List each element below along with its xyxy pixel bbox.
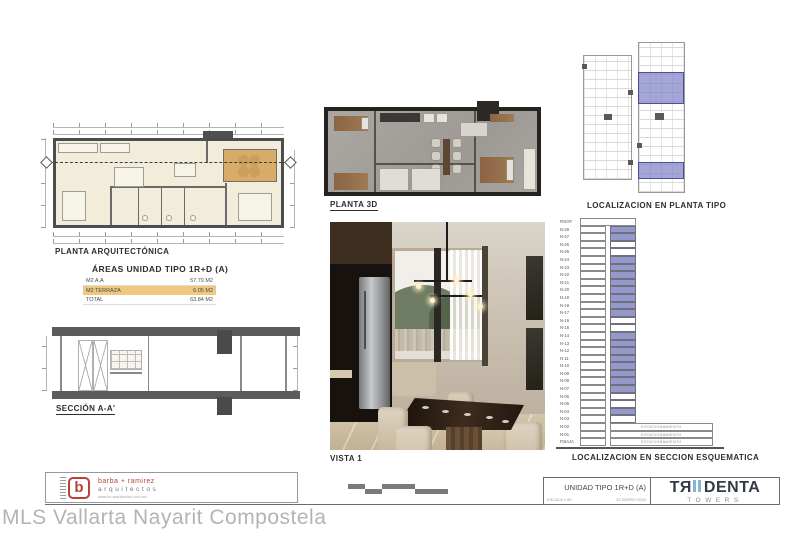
level-row: N-12	[558, 347, 758, 355]
place-setting	[502, 420, 509, 423]
chair-3d	[453, 152, 461, 160]
sofa	[392, 362, 436, 396]
wall-art	[526, 256, 543, 320]
level-row: P.BAJAESTACIONAMIENTO	[558, 438, 758, 446]
building-left	[583, 55, 632, 180]
firm-name: barba + ramirez	[98, 478, 155, 485]
level-row: N-18	[558, 302, 758, 310]
chair-3d	[432, 139, 440, 147]
level-row: N-11	[558, 355, 758, 363]
loc-seccion-title: LOCALIZACION EN SECCION ESQUEMATICA	[572, 453, 759, 462]
plan-title: PLANTA ARQUITECTÓNICA	[55, 247, 169, 256]
unit-highlight-bottom	[638, 162, 684, 179]
dining-table	[114, 167, 144, 187]
appliance-3d	[437, 114, 447, 122]
dimension-line	[53, 239, 284, 244]
brand-cell: TЯDENTA TOWERS	[650, 477, 780, 505]
dimension-line	[41, 138, 46, 228]
interior-wall	[225, 183, 227, 225]
interior-wall	[184, 187, 185, 225]
wc-fixture	[142, 215, 148, 221]
vista-render	[330, 222, 545, 450]
section-column-stub	[217, 397, 232, 415]
wall-art	[526, 328, 543, 390]
pendant-arm	[414, 280, 472, 282]
core-chip	[604, 114, 612, 120]
light-bulb	[430, 298, 435, 303]
dimension-line	[293, 336, 298, 391]
dimension-line	[53, 123, 284, 128]
level-row: N-22	[558, 271, 758, 279]
level-row: N-15	[558, 324, 758, 332]
section-wall	[148, 336, 149, 391]
wc-fixture	[190, 215, 196, 221]
planta-3d-title: PLANTA 3D	[330, 200, 378, 211]
level-row: N-17	[558, 309, 758, 317]
level-row: N-16	[558, 317, 758, 325]
kitchen-counter	[58, 143, 98, 153]
level-row: N-14	[558, 332, 758, 340]
unit-title-cell: UNIDAD TIPO 1R+D (A) ESCALA 1:50 22 ENER…	[543, 477, 650, 505]
watermark: MLS Vallarta Nayarit Compostela	[2, 506, 326, 530]
level-row: N-24	[558, 256, 758, 264]
core-chip	[628, 160, 633, 165]
section-counter	[110, 372, 142, 374]
place-setting	[422, 406, 429, 409]
firm-type: arquitectos	[98, 486, 158, 493]
core-chip	[582, 64, 587, 69]
chair-3d	[432, 152, 440, 160]
schematic-section: ROOFN-28N-27N-26N-25N-24N-23N-22N-21N-20…	[558, 218, 758, 446]
level-row: N-02ESTACIONAMIENTO	[558, 423, 758, 431]
level-row: N-05	[558, 400, 758, 408]
level-row: N-06	[558, 393, 758, 401]
wardrobe-3d	[524, 149, 535, 189]
ground-line	[556, 447, 724, 449]
level-row: N-04	[558, 408, 758, 416]
level-row: N-13	[558, 340, 758, 348]
appliance-3d	[424, 114, 434, 122]
area-row: M2 TERRAZA6.05 M2	[83, 286, 216, 295]
level-row: N-28	[558, 226, 758, 234]
sofa	[174, 163, 196, 177]
section-wall	[240, 336, 242, 391]
wall-3d	[374, 111, 376, 192]
place-setting	[464, 413, 471, 416]
section-title: SECCIÓN A-A'	[56, 404, 115, 415]
table-pedestal	[446, 427, 482, 450]
kitchen-stove	[100, 143, 130, 153]
section-wall	[285, 336, 287, 391]
section-column	[217, 330, 232, 354]
bed-left	[62, 191, 86, 221]
level-row: N-03	[558, 415, 758, 423]
interior-wall	[138, 187, 139, 225]
terrace-area	[223, 149, 277, 182]
planta-3d	[324, 107, 541, 196]
areas-table-title: ÁREAS UNIDAD TIPO 1R+D (A)	[92, 264, 228, 274]
pillows-3d	[507, 160, 513, 180]
chair-3d	[453, 165, 461, 173]
section-cut-line	[45, 162, 292, 163]
core-chip	[655, 113, 664, 120]
level-row: N-23	[558, 264, 758, 272]
level-row: N-07	[558, 385, 758, 393]
brand-logo: TЯDENTA	[650, 479, 780, 497]
level-row: N-19	[558, 294, 758, 302]
countertop	[330, 370, 352, 378]
light-bulb	[416, 284, 421, 289]
vista-title: VISTA 1	[330, 454, 362, 463]
section-shelves	[110, 350, 142, 370]
dimension-line	[53, 232, 284, 237]
place-setting	[486, 416, 493, 419]
section-wall	[60, 336, 62, 391]
light-bulb	[468, 292, 473, 297]
section-bottom-slab	[52, 391, 300, 399]
level-row: N-26	[558, 241, 758, 249]
level-row: N-20	[558, 286, 758, 294]
firm-logo-box: b barba + ramirez arquitectos www.br-arq…	[45, 472, 298, 503]
drawing-scale: ESCALA 1:50	[547, 497, 571, 502]
bath-3d	[380, 169, 408, 190]
core-chip	[637, 143, 642, 148]
interior-wall	[161, 187, 162, 225]
dining-chair	[396, 426, 432, 450]
section-wardrobe	[93, 340, 108, 391]
level-row: N-01ESTACIONAMIENTO	[558, 431, 758, 439]
console-3d	[490, 114, 514, 122]
dimension-line	[53, 130, 284, 135]
bed-right	[238, 193, 272, 221]
level-row: N-08	[558, 377, 758, 385]
place-setting	[442, 410, 449, 413]
area-row: M2 A.A57.79 M2	[83, 276, 216, 286]
loc-planta-title: LOCALIZACION EN PLANTA TIPO	[587, 201, 726, 210]
firm-url: www.br-arquitectos.com.mx	[98, 494, 147, 499]
dimension-line	[42, 336, 47, 391]
pendant-stem	[446, 222, 448, 282]
bed-left-3d	[334, 173, 368, 190]
tv-wall-3d	[380, 113, 420, 122]
window-mullion	[434, 248, 441, 362]
floor-plan	[53, 138, 284, 228]
schematic-rows: ROOFN-28N-27N-26N-25N-24N-23N-22N-21N-20…	[558, 218, 758, 446]
brand-bars-icon	[693, 480, 696, 492]
area-row: TOTAL63.84 M2	[83, 295, 216, 305]
logo-side-bar	[60, 477, 66, 499]
areas-table-rows: M2 A.A57.79 M2M2 TERRAZA6.05 M2TOTAL63.8…	[83, 276, 216, 305]
wc-fixture	[166, 215, 172, 221]
level-row: N-09	[558, 370, 758, 378]
core-chip	[628, 90, 633, 95]
light-bulb	[454, 278, 459, 283]
interior-wall	[206, 141, 208, 163]
firm-logo-mark: b	[68, 477, 90, 499]
drawing-date: 22 ENERO 2020	[616, 497, 646, 502]
brand-right: DENTA	[704, 479, 760, 496]
brand-left: TЯ	[670, 479, 692, 496]
level-row: ROOF	[558, 218, 758, 226]
unit-title: UNIDAD TIPO 1R+D (A)	[564, 483, 646, 492]
refrigerator	[359, 277, 390, 409]
drawing-sheet: PLANTA ARQUITECTÓNICA ÁREAS UNIDAD TIPO …	[0, 0, 800, 547]
terrace-table	[238, 155, 249, 166]
section-wardrobe	[78, 340, 93, 391]
pendant-arm	[430, 295, 482, 297]
unit-highlight-top	[638, 72, 684, 104]
bath-3d	[412, 169, 440, 190]
brand-sub: TOWERS	[650, 497, 780, 504]
interior-wall	[110, 186, 112, 225]
level-row: N-21	[558, 279, 758, 287]
chair-3d	[453, 139, 461, 147]
light-bulb	[478, 304, 483, 309]
level-row: N-25	[558, 248, 758, 256]
dining-table-3d	[443, 139, 450, 175]
section-top-slab	[52, 327, 300, 336]
pillows-3d	[362, 118, 368, 129]
sofa-3d	[461, 123, 487, 136]
level-row: N-10	[558, 362, 758, 370]
level-row: N-27	[558, 233, 758, 241]
